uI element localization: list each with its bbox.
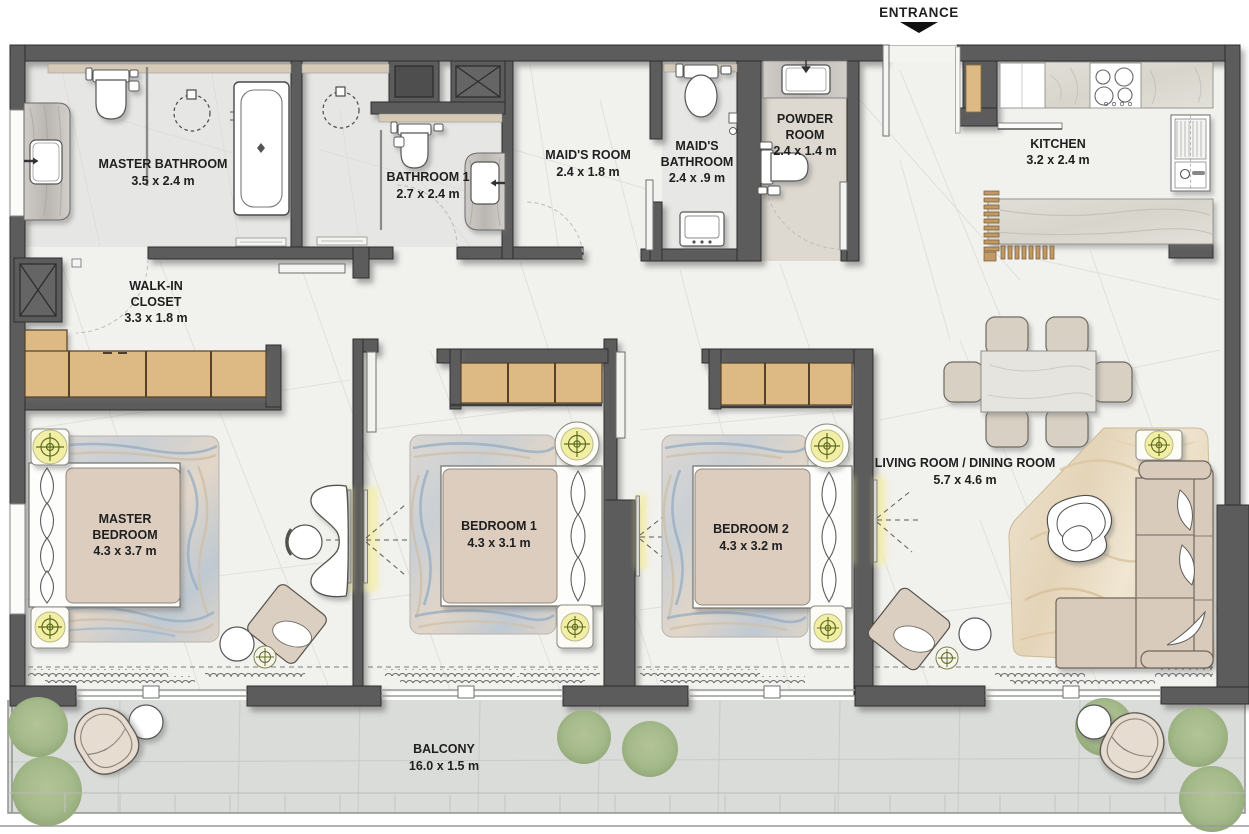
svg-text:BALCONY: BALCONY xyxy=(413,742,475,756)
svg-text:2.7 x 2.4 m: 2.7 x 2.4 m xyxy=(396,187,459,201)
svg-text:BATHROOM 1: BATHROOM 1 xyxy=(386,170,469,184)
svg-text:BEDROOM: BEDROOM xyxy=(92,528,157,542)
svg-text:4.3 x 3.2 m: 4.3 x 3.2 m xyxy=(719,539,782,553)
svg-text:MASTER: MASTER xyxy=(99,512,152,526)
svg-text:BATHROOM: BATHROOM xyxy=(661,155,734,169)
svg-text:2.4 x .9 m: 2.4 x .9 m xyxy=(669,171,725,185)
svg-text:MASTER BATHROOM: MASTER BATHROOM xyxy=(99,157,228,171)
svg-text:BEDROOM 1: BEDROOM 1 xyxy=(461,519,537,533)
svg-text:MAID'S: MAID'S xyxy=(675,139,718,153)
svg-text:MAID'S ROOM: MAID'S ROOM xyxy=(545,148,631,162)
svg-text:KITCHEN: KITCHEN xyxy=(1030,137,1086,151)
svg-text:BEDROOM 2: BEDROOM 2 xyxy=(713,522,789,536)
svg-text:ROOM: ROOM xyxy=(786,128,825,142)
svg-text:5.7 x 4.6 m: 5.7 x 4.6 m xyxy=(933,473,996,487)
svg-text:2.4 x 1.4 m: 2.4 x 1.4 m xyxy=(773,144,836,158)
svg-text:3.2 x 2.4 m: 3.2 x 2.4 m xyxy=(1026,153,1089,167)
svg-text:3.3 x 1.8 m: 3.3 x 1.8 m xyxy=(124,311,187,325)
svg-text:LIVING ROOM / DINING ROOM: LIVING ROOM / DINING ROOM xyxy=(875,456,1056,470)
svg-text:3.5 x 2.4 m: 3.5 x 2.4 m xyxy=(131,174,194,188)
svg-text:4.3 x 3.7 m: 4.3 x 3.7 m xyxy=(93,544,156,558)
svg-text:4.3 x 3.1 m: 4.3 x 3.1 m xyxy=(467,536,530,550)
svg-text:16.0 x 1.5 m: 16.0 x 1.5 m xyxy=(409,759,479,773)
svg-text:CLOSET: CLOSET xyxy=(131,295,182,309)
svg-text:WALK-IN: WALK-IN xyxy=(129,279,182,293)
svg-text:ENTRANCE: ENTRANCE xyxy=(879,5,959,20)
svg-text:POWDER: POWDER xyxy=(777,112,833,126)
svg-text:2.4 x 1.8 m: 2.4 x 1.8 m xyxy=(556,165,619,179)
